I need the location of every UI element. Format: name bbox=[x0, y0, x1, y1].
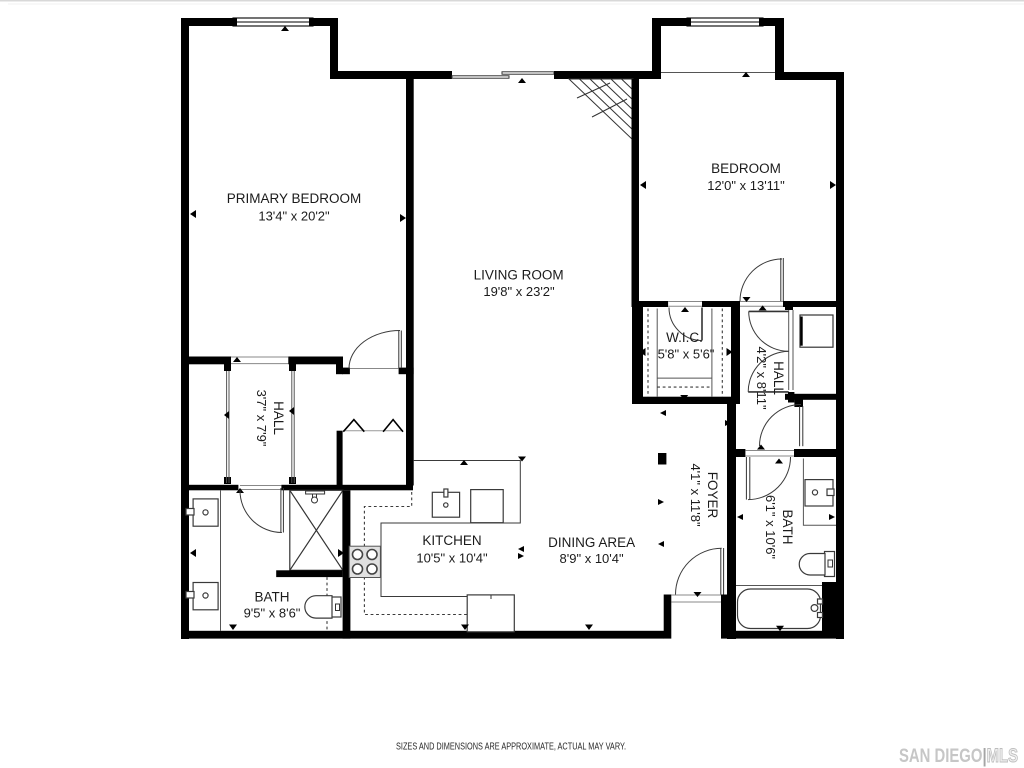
svg-text:8'9" x 10'4": 8'9" x 10'4" bbox=[560, 551, 624, 566]
svg-text:DINING AREA: DINING AREA bbox=[548, 535, 635, 550]
svg-text:13'4" x 20'2": 13'4" x 20'2" bbox=[258, 209, 330, 224]
svg-text:4'1" x 11'8": 4'1" x 11'8" bbox=[688, 463, 703, 526]
svg-text:4'2" x 8'11": 4'2" x 8'11" bbox=[754, 346, 769, 409]
svg-text:BATH: BATH bbox=[254, 589, 289, 604]
svg-text:SAN DIEGO|MLS: SAN DIEGO|MLS bbox=[899, 745, 1018, 767]
svg-text:9'5" x 8'6": 9'5" x 8'6" bbox=[244, 606, 301, 621]
svg-text:5'8" x 5'6": 5'8" x 5'6" bbox=[658, 347, 715, 362]
svg-text:BEDROOM: BEDROOM bbox=[711, 161, 781, 176]
svg-text:HALL: HALL bbox=[771, 361, 786, 395]
svg-text:KITCHEN: KITCHEN bbox=[422, 533, 481, 548]
svg-text:6'1" x 10'6": 6'1" x 10'6" bbox=[763, 495, 778, 559]
svg-text:19'8" x 23'2": 19'8" x 23'2" bbox=[483, 284, 555, 299]
svg-text:HALL: HALL bbox=[271, 401, 286, 435]
svg-text:LIVING ROOM: LIVING ROOM bbox=[474, 268, 564, 283]
svg-text:12'0" x 13'11": 12'0" x 13'11" bbox=[707, 178, 785, 193]
svg-text:BATH: BATH bbox=[780, 509, 795, 544]
svg-text:SIZES AND DIMENSIONS ARE APPRO: SIZES AND DIMENSIONS ARE APPROXIMATE, AC… bbox=[396, 742, 626, 753]
svg-text:10'5" x 10'4": 10'5" x 10'4" bbox=[416, 551, 488, 566]
svg-text:FOYER: FOYER bbox=[705, 472, 720, 519]
svg-text:PRIMARY BEDROOM: PRIMARY BEDROOM bbox=[227, 191, 362, 206]
svg-text:3'7" x 7'9": 3'7" x 7'9" bbox=[254, 390, 269, 447]
svg-text:W.I.C.: W.I.C. bbox=[666, 330, 703, 345]
